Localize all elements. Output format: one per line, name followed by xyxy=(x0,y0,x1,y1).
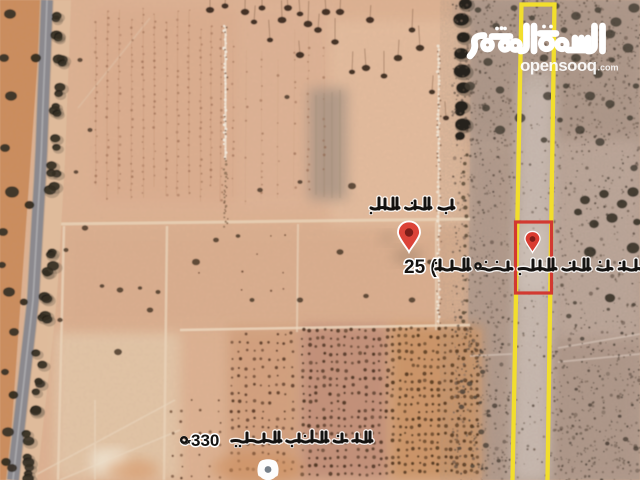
svg-text:.com: .com xyxy=(598,63,619,73)
svg-text:25 (: 25 ( xyxy=(404,257,437,278)
svg-text:330: 330 xyxy=(191,431,219,450)
svg-text:opensooq: opensooq xyxy=(520,56,597,75)
